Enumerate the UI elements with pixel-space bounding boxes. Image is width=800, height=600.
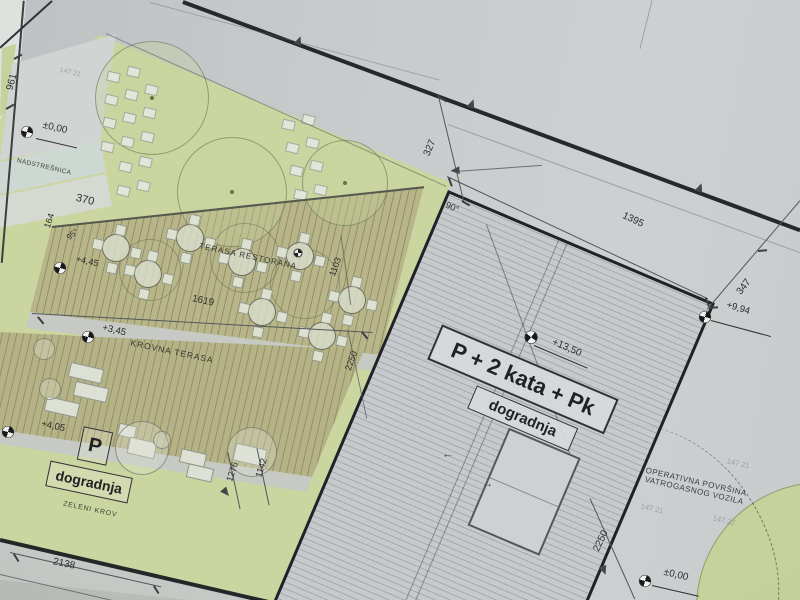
- slope-arrow-left: ←: [442, 447, 454, 460]
- chair: [114, 223, 127, 236]
- faint-line-top-right: [639, 0, 652, 49]
- slope-arrow-right: →: [481, 477, 493, 490]
- chair: [240, 237, 253, 250]
- chair: [275, 311, 288, 324]
- chair: [350, 275, 363, 288]
- round-table-outline: [33, 338, 55, 360]
- chair: [298, 231, 311, 244]
- table-top: [335, 283, 369, 317]
- underline-elev-corner: [711, 320, 771, 337]
- table-top: [245, 295, 279, 329]
- chair: [188, 213, 201, 226]
- arrow-line-upper: [455, 165, 542, 172]
- chair: [260, 287, 273, 300]
- dim-1395: 1395: [621, 210, 646, 229]
- round-table-outline: [153, 431, 171, 449]
- dim-tick: [758, 249, 767, 251]
- round-table-outline: [39, 378, 61, 400]
- chair: [365, 299, 378, 312]
- tree-trunk-dot: [150, 96, 154, 100]
- chair: [179, 251, 192, 264]
- chair: [105, 261, 118, 274]
- chair: [161, 273, 174, 286]
- chair: [341, 313, 354, 326]
- dim-tick: [709, 306, 718, 308]
- chair: [311, 349, 324, 362]
- chair: [137, 287, 150, 300]
- tree-trunk-dot: [343, 181, 347, 185]
- dim-327: 327: [422, 138, 439, 158]
- elevation-building-label: +13,50: [550, 337, 583, 359]
- dim-line-347: [707, 200, 800, 309]
- chair: [313, 255, 326, 268]
- chair: [335, 335, 348, 348]
- site-plan-photo: +13,50 P + 2 kata + Pk dogradnja ← → 961…: [0, 0, 800, 600]
- elevation-corner-label: +9,94: [725, 300, 751, 317]
- table-top: [131, 257, 165, 291]
- chair: [251, 325, 264, 338]
- small-survey-mark: [294, 249, 303, 258]
- tree-trunk-dot: [230, 190, 234, 194]
- chair: [289, 269, 302, 282]
- parcel-number: 147 21: [726, 457, 750, 470]
- dim-347: 347: [735, 277, 754, 297]
- garage-title: P: [86, 433, 104, 458]
- boundary-tick-triangle: [450, 166, 460, 175]
